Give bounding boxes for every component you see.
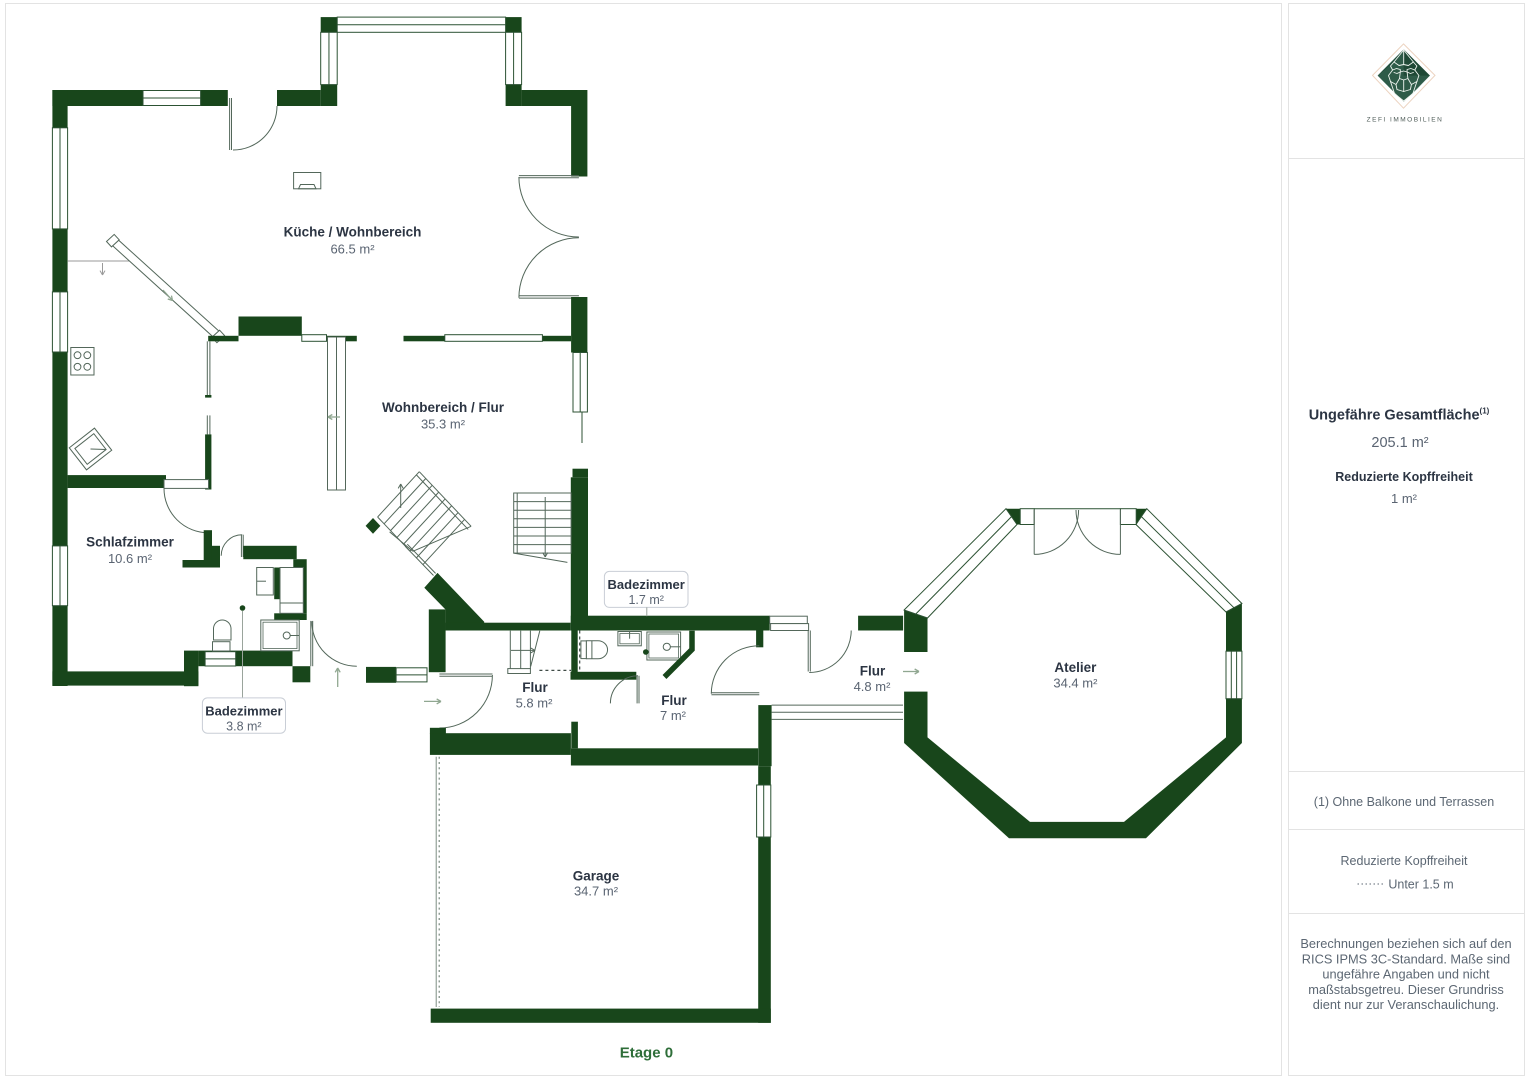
svg-text:35.3 m²: 35.3 m²: [421, 417, 466, 432]
svg-text:Badezimmer: Badezimmer: [608, 577, 685, 592]
svg-text:Schlafzimmer: Schlafzimmer: [86, 535, 175, 550]
svg-text:7 m²: 7 m²: [660, 708, 687, 723]
svg-text:Garage: Garage: [573, 869, 620, 884]
svg-text:dient nur zur Veranschaulichun: dient nur zur Veranschaulichung.: [1313, 997, 1499, 1012]
svg-text:205.1 m²: 205.1 m²: [1371, 435, 1428, 451]
svg-text:1 m²: 1 m²: [1391, 491, 1418, 506]
svg-text:5.8 m²: 5.8 m²: [516, 696, 554, 711]
svg-text:66.5 m²: 66.5 m²: [330, 242, 375, 257]
svg-text:maßstabsgetreu. Dieser Grundri: maßstabsgetreu. Dieser Grundriss: [1308, 982, 1504, 997]
svg-text:Reduzierte Kopffreiheit: Reduzierte Kopffreiheit: [1335, 470, 1473, 484]
svg-text:10.6 m²: 10.6 m²: [108, 551, 153, 566]
svg-text:ungefähre Angaben und nicht: ungefähre Angaben und nicht: [1322, 967, 1490, 982]
svg-text:Etage 0: Etage 0: [620, 1045, 673, 1062]
svg-text:RICS IPMS 3C-Standard. Maße si: RICS IPMS 3C-Standard. Maße sind: [1302, 951, 1510, 966]
svg-text:Flur: Flur: [661, 693, 687, 708]
svg-text:34.7 m²: 34.7 m²: [574, 884, 619, 899]
svg-text:Wohnbereich / Flur: Wohnbereich / Flur: [382, 400, 505, 415]
svg-text:Flur: Flur: [522, 680, 548, 695]
svg-text:4.8 m²: 4.8 m²: [854, 679, 892, 694]
svg-text:Unter 1.5 m: Unter 1.5 m: [1388, 878, 1453, 892]
svg-text:ZEFI IMMOBILIEN: ZEFI IMMOBILIEN: [1367, 117, 1444, 124]
svg-text:Flur: Flur: [860, 664, 886, 679]
svg-text:Berechnungen beziehen sich auf: Berechnungen beziehen sich auf den: [1300, 936, 1511, 951]
svg-text:Atelier: Atelier: [1054, 660, 1097, 675]
svg-text:Küche / Wohnbereich: Küche / Wohnbereich: [284, 225, 422, 240]
svg-text:1.7 m²: 1.7 m²: [628, 593, 663, 607]
svg-text:3.8 m²: 3.8 m²: [226, 720, 261, 734]
svg-text:Badezimmer: Badezimmer: [205, 704, 282, 719]
svg-text:Ungefähre Gesamtfläche(1): Ungefähre Gesamtfläche(1): [1309, 407, 1490, 424]
svg-text:Reduzierte Kopffreiheit: Reduzierte Kopffreiheit: [1341, 854, 1468, 868]
svg-text:(1) Ohne Balkone und Terrassen: (1) Ohne Balkone und Terrassen: [1314, 795, 1494, 809]
svg-text:34.4 m²: 34.4 m²: [1053, 676, 1098, 691]
